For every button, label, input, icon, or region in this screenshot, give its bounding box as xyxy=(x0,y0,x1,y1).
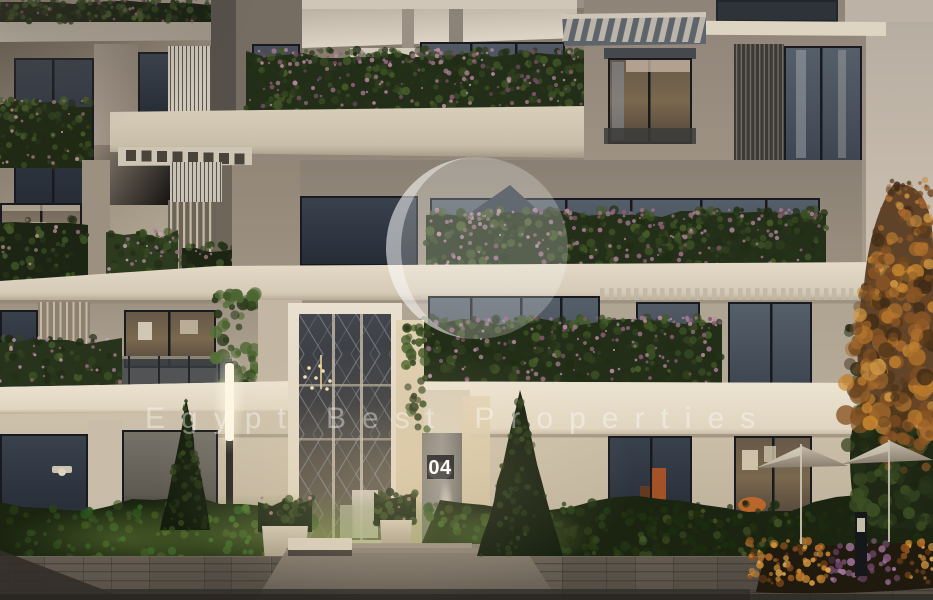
svg-text:Egypt Best Properties: Egypt Best Properties xyxy=(145,402,771,435)
